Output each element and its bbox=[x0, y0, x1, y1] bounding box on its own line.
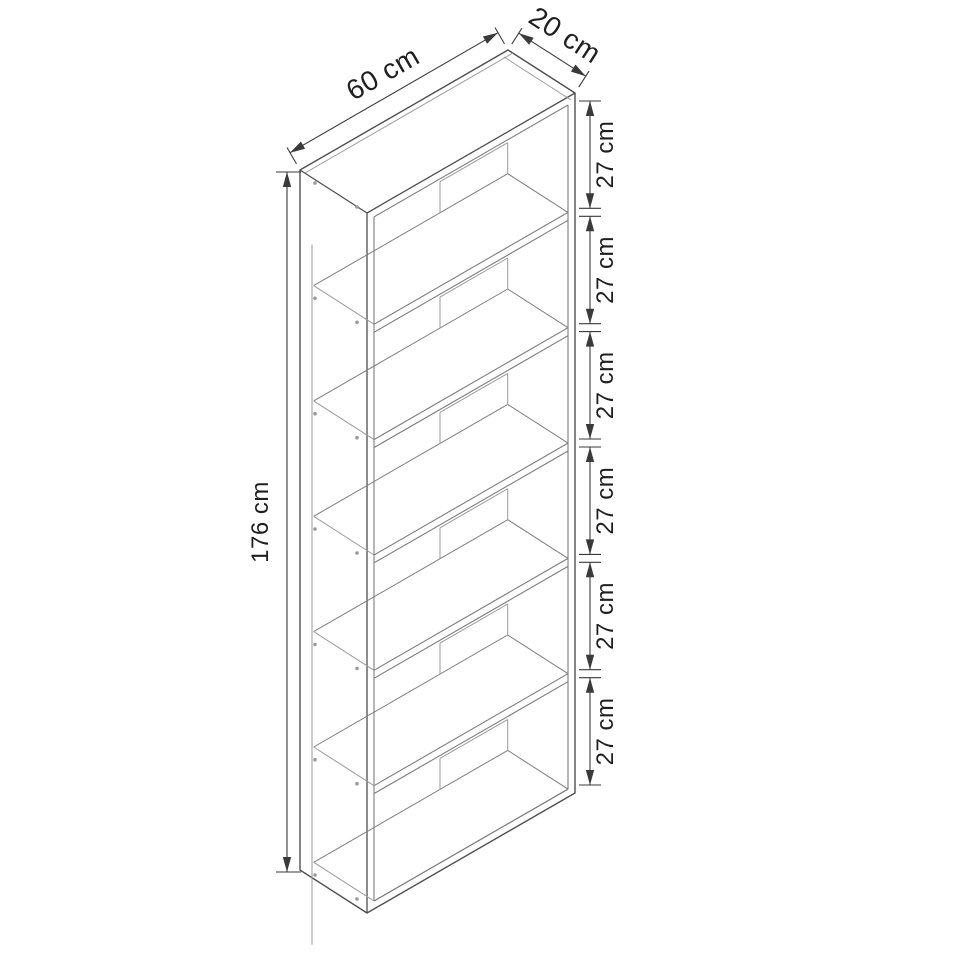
dimension-arrowhead bbox=[483, 33, 498, 44]
shelf-pin-hole bbox=[313, 643, 317, 647]
diagram-canvas: 60 cm20 cm176 cm27 cm27 cm27 cm27 cm27 c… bbox=[0, 0, 960, 960]
dimension-height: 176 cm bbox=[247, 172, 301, 872]
dimension-arrowhead bbox=[586, 193, 594, 208]
shelf-gap-dimension-label: 27 cm bbox=[592, 697, 619, 765]
shelf-pin-hole bbox=[313, 527, 317, 531]
dimension-arrowhead bbox=[290, 142, 305, 153]
shelf-pin-hole bbox=[313, 181, 317, 185]
shelf-pin-hole bbox=[313, 758, 317, 762]
depth-dimension-label: 20 cm bbox=[524, 0, 607, 69]
shelf-pin-hole bbox=[355, 321, 359, 325]
shelf-pin-hole bbox=[313, 412, 317, 416]
width-dimension-label: 60 cm bbox=[341, 40, 425, 106]
shelf-pin-hole bbox=[355, 782, 359, 786]
dimension-arrowhead bbox=[586, 562, 594, 577]
shelf-gap-dimension-label: 27 cm bbox=[592, 467, 619, 535]
dimension-shelf-gap: 27 cm bbox=[586, 216, 619, 323]
dimension-arrowhead bbox=[586, 101, 594, 116]
shelf-pin-hole bbox=[355, 667, 359, 671]
shelf-gap-dimension-label: 27 cm bbox=[592, 236, 619, 304]
dimension-arrowhead bbox=[283, 857, 291, 872]
shelf-gap-dimension-label: 27 cm bbox=[592, 582, 619, 650]
shelf-pin-hole bbox=[313, 873, 317, 877]
dimension-arrowhead bbox=[519, 33, 534, 45]
dimension-arrowhead bbox=[586, 424, 594, 439]
dimension-arrowhead bbox=[586, 678, 594, 693]
bookcase-structure bbox=[300, 50, 575, 945]
dimension-arrowhead bbox=[571, 65, 586, 77]
dimension-arrowhead bbox=[586, 309, 594, 324]
shelf-gap-dimension-label: 27 cm bbox=[592, 121, 619, 189]
dimension-arrowhead bbox=[586, 539, 594, 554]
dimension-shelf-gap: 27 cm bbox=[586, 562, 619, 669]
shelf-pin-hole bbox=[355, 897, 359, 901]
bookcase-dimension-drawing: 60 cm20 cm176 cm27 cm27 cm27 cm27 cm27 c… bbox=[0, 0, 960, 960]
extension-tick bbox=[512, 28, 522, 44]
dimension-shelf-gap: 27 cm bbox=[586, 101, 619, 208]
shelf-pin-hole bbox=[313, 297, 317, 301]
shelf-pin-hole bbox=[355, 551, 359, 555]
dimension-shelf-gap: 27 cm bbox=[586, 678, 619, 785]
dimension-arrowhead bbox=[283, 172, 291, 187]
dimension-arrowhead bbox=[586, 332, 594, 347]
dimension-arrowhead bbox=[586, 770, 594, 785]
shelf-gap-dimension-label: 27 cm bbox=[592, 351, 619, 419]
dimension-arrowhead bbox=[586, 216, 594, 231]
bookcase-silhouette bbox=[300, 50, 575, 913]
extension-tick bbox=[495, 28, 505, 44]
shelf-pin-hole bbox=[355, 436, 359, 440]
height-dimension-label: 176 cm bbox=[247, 481, 274, 563]
shelf-pin-hole bbox=[355, 205, 359, 209]
dimension-shelf-gap: 27 cm bbox=[586, 332, 619, 439]
dimension-arrowhead bbox=[586, 447, 594, 462]
dimension-shelf-gap: 27 cm bbox=[586, 447, 619, 554]
dimension-arrowhead bbox=[586, 655, 594, 670]
